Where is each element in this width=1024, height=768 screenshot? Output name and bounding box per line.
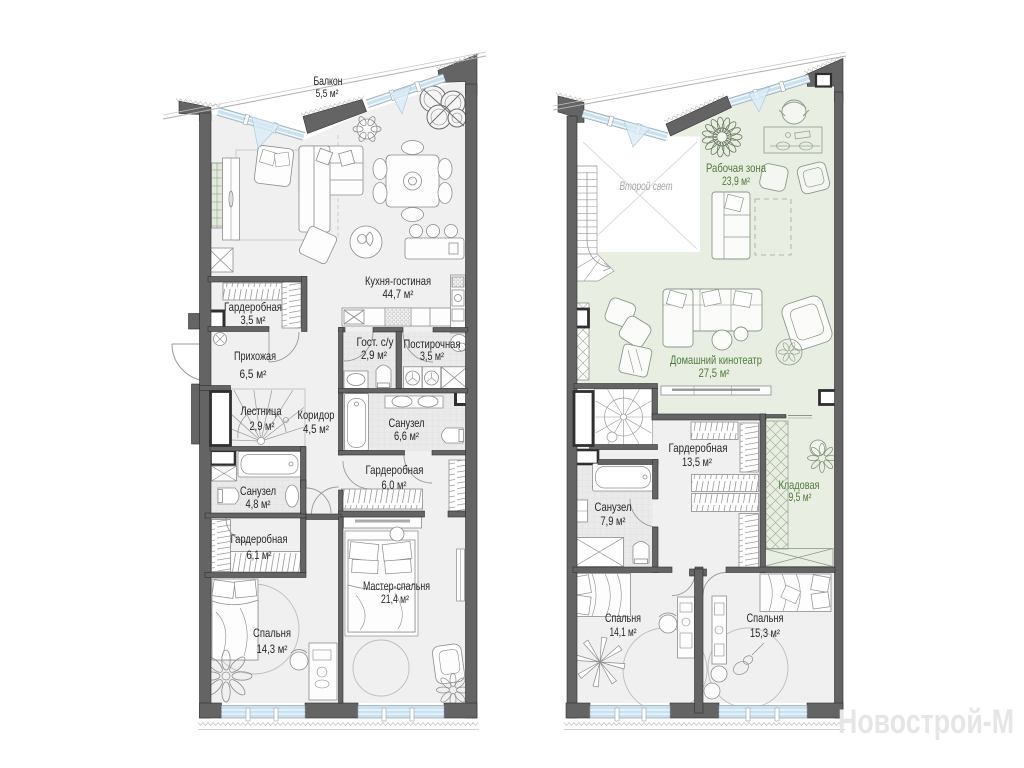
svg-text:Гардеробная: Гардеробная — [669, 441, 728, 455]
svg-text:14,1 м²: 14,1 м² — [610, 627, 637, 639]
svg-text:21,4 м²: 21,4 м² — [381, 594, 409, 606]
svg-text:Мастер-спальня: Мастер-спальня — [363, 579, 430, 593]
svg-text:Спальня: Спальня — [253, 626, 291, 640]
svg-text:Второй свет: Второй свет — [620, 181, 673, 193]
svg-text:Гардеробная: Гардеробная — [224, 300, 282, 314]
svg-text:Балкон: Балкон — [314, 76, 343, 88]
svg-text:9,5 м²: 9,5 м² — [789, 492, 812, 504]
svg-text:27,5 м²: 27,5 м² — [699, 368, 730, 380]
svg-text:Постирочная: Постирочная — [404, 337, 461, 351]
svg-text:44,7 м²: 44,7 м² — [383, 289, 414, 301]
svg-text:Прихожая: Прихожая — [234, 349, 276, 363]
svg-text:23,9 м²: 23,9 м² — [722, 176, 750, 188]
svg-text:6,5 м²: 6,5 м² — [240, 369, 267, 381]
svg-text:Гардеробная: Гардеробная — [231, 532, 288, 546]
svg-text:14,3 м²: 14,3 м² — [257, 644, 288, 656]
svg-text:3,5 м²: 3,5 м² — [241, 315, 266, 327]
svg-text:Домашний кинотеатр: Домашний кинотеатр — [670, 353, 762, 367]
svg-text:Кладовая: Кладовая — [779, 478, 820, 492]
svg-text:15,3 м²: 15,3 м² — [750, 628, 780, 640]
svg-text:5,5 м²: 5,5 м² — [316, 88, 339, 100]
svg-text:Лестница: Лестница — [241, 404, 282, 418]
svg-text:Кухня-гостиная: Кухня-гостиная — [365, 274, 431, 288]
svg-text:Санузел: Санузел — [240, 484, 276, 498]
svg-text:Спальня: Спальня — [747, 611, 784, 625]
svg-text:13,5 м²: 13,5 м² — [682, 457, 712, 469]
svg-text:Рабочая зона: Рабочая зона — [706, 161, 766, 175]
svg-text:4,8 м²: 4,8 м² — [246, 499, 271, 511]
svg-text:Гардеробная: Гардеробная — [366, 463, 424, 477]
svg-text:6,0 м²: 6,0 м² — [382, 480, 407, 492]
svg-text:Санузел: Санузел — [595, 500, 632, 514]
svg-text:6,1 м²: 6,1 м² — [247, 550, 272, 562]
svg-text:4,5 м²: 4,5 м² — [303, 424, 329, 436]
svg-text:6,6 м²: 6,6 м² — [394, 431, 419, 443]
svg-text:Санузел: Санузел — [389, 416, 425, 430]
svg-text:2,9 м²: 2,9 м² — [361, 350, 387, 362]
svg-text:3,5 м²: 3,5 м² — [420, 351, 444, 363]
svg-text:Спальня: Спальня — [605, 611, 641, 625]
svg-text:2,9 м²: 2,9 м² — [250, 421, 275, 433]
svg-text:Гост. с/у: Гост. с/у — [357, 335, 394, 349]
svg-text:Новострой-М: Новострой-М — [838, 703, 1014, 741]
svg-text:7,9 м²: 7,9 м² — [601, 516, 626, 528]
svg-text:Коридор: Коридор — [298, 408, 335, 422]
